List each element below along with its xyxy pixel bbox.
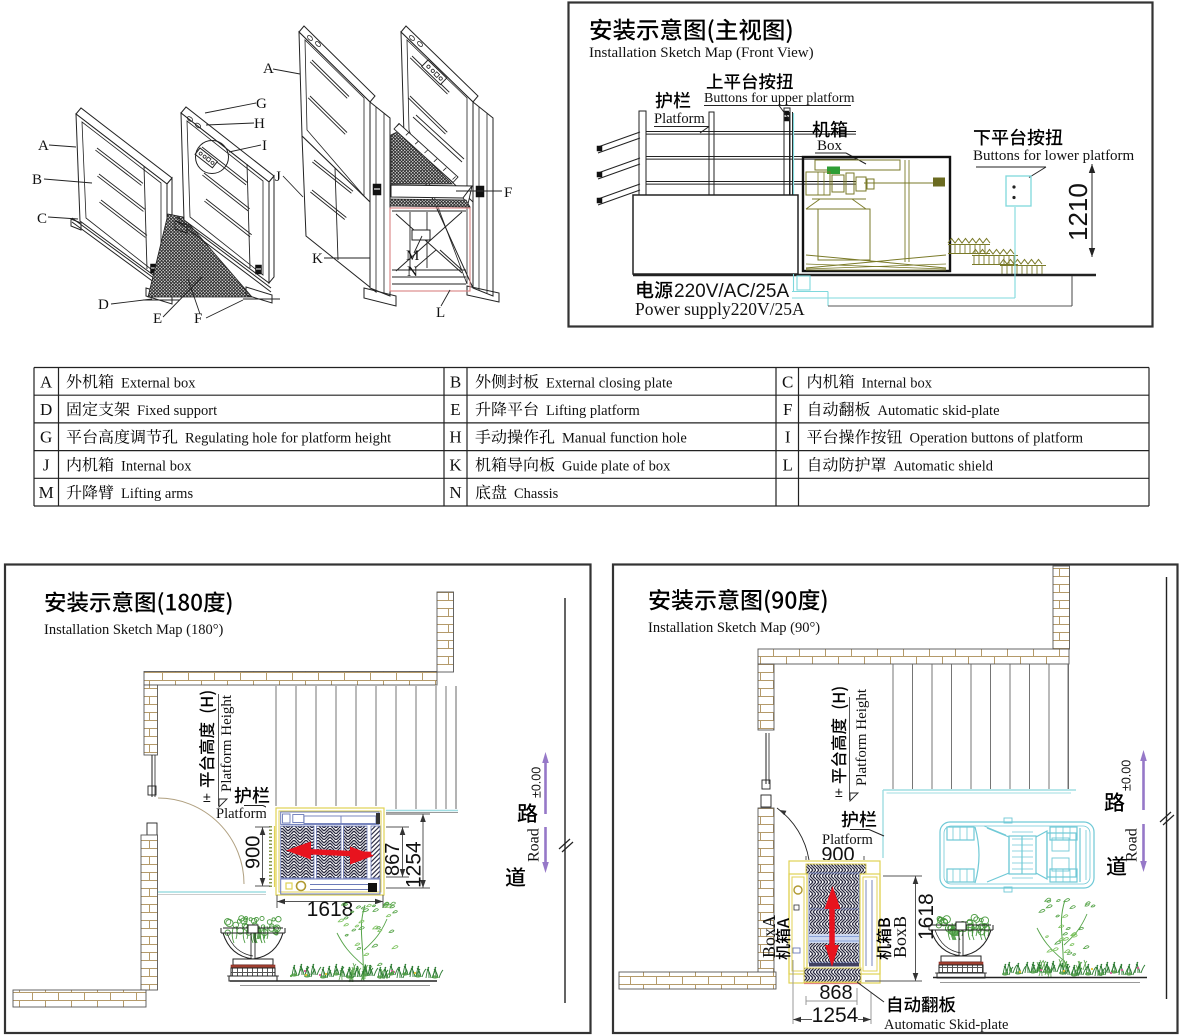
svg-text:K: K (312, 251, 323, 267)
svg-text:C: C (782, 372, 793, 391)
svg-text:M: M (39, 483, 54, 502)
svg-text:Platform: Platform (654, 111, 705, 127)
svg-text:F: F (783, 400, 792, 419)
svg-text:867: 867 (382, 843, 404, 876)
svg-text:Lifting arms: Lifting arms (121, 486, 193, 502)
svg-text:±0.00: ±0.00 (1120, 760, 1134, 791)
svg-text:B: B (450, 372, 461, 391)
svg-text:Regulating hole for platform h: Regulating hole for platform height (185, 431, 391, 447)
svg-text:J: J (275, 169, 281, 185)
svg-text:Lifting platform: Lifting platform (546, 403, 641, 419)
svg-text:Operation buttons of platform: Operation buttons of platform (910, 431, 1084, 447)
svg-text:BoxA: BoxA (759, 915, 779, 958)
svg-text:±: ± (835, 784, 843, 800)
svg-text:F: F (194, 311, 202, 327)
svg-text:I: I (262, 138, 267, 154)
svg-text:J: J (43, 455, 50, 474)
svg-text:G: G (256, 96, 267, 112)
svg-text:N: N (449, 483, 461, 502)
svg-text:1254: 1254 (812, 1004, 859, 1027)
svg-text:Automatic skid-plate: Automatic skid-plate (878, 403, 1000, 419)
svg-text:D: D (40, 400, 52, 419)
svg-text:Buttons for upper platform: Buttons for upper platform (704, 91, 855, 106)
svg-text:1210: 1210 (1063, 183, 1093, 241)
svg-text:H: H (254, 116, 265, 132)
svg-text:1618: 1618 (915, 893, 938, 940)
svg-text:±: ± (203, 789, 211, 805)
svg-text:External closing plate: External closing plate (546, 375, 672, 391)
svg-text:1618: 1618 (307, 898, 354, 921)
svg-text:Road: Road (526, 828, 543, 862)
svg-text:Platform Height: Platform Height (219, 694, 235, 792)
svg-text:900: 900 (243, 836, 265, 869)
svg-text:Platform Height: Platform Height (854, 688, 870, 786)
svg-text:Manual function hole: Manual function hole (562, 431, 687, 447)
svg-text:E: E (153, 311, 162, 327)
svg-text:1254: 1254 (403, 841, 426, 888)
svg-text:D: D (98, 297, 109, 313)
svg-text:B: B (32, 172, 42, 188)
svg-text:Chassis: Chassis (514, 486, 559, 502)
svg-text:External box: External box (121, 375, 196, 391)
svg-text:L: L (436, 305, 445, 321)
svg-text:K: K (449, 455, 462, 474)
svg-text:F: F (504, 185, 512, 201)
svg-text:BoxB: BoxB (890, 916, 910, 958)
svg-text:Box: Box (817, 138, 843, 154)
svg-text:Buttons for lower platform: Buttons for lower platform (973, 148, 1135, 164)
svg-text:Fixed support: Fixed support (137, 403, 217, 419)
svg-text:E: E (450, 400, 460, 419)
svg-text:G: G (40, 428, 52, 447)
svg-text:L: L (783, 455, 793, 474)
svg-text:Road: Road (1124, 828, 1141, 862)
svg-text:Internal box: Internal box (862, 375, 933, 391)
svg-text:Automatic shield: Automatic shield (894, 458, 994, 474)
svg-text:Installation Sketch Map (90°): Installation Sketch Map (90°) (648, 620, 820, 636)
svg-text:M: M (406, 248, 419, 264)
svg-text:H: H (449, 428, 461, 447)
svg-text:Guide plate of box: Guide plate of box (562, 458, 671, 474)
svg-text:Platform: Platform (216, 806, 267, 822)
svg-text:A: A (40, 372, 53, 391)
svg-text:A: A (263, 61, 274, 77)
svg-text:Power supply220V/25A: Power supply220V/25A (635, 299, 805, 319)
svg-text:Installation Sketch Map (Front: Installation Sketch Map (Front View) (589, 45, 814, 61)
svg-text:Installation Sketch Map (180°): Installation Sketch Map (180°) (44, 622, 224, 638)
svg-text:A: A (38, 138, 49, 154)
svg-text:C: C (37, 211, 47, 227)
svg-text:I: I (785, 428, 791, 447)
svg-text:±0.00: ±0.00 (530, 767, 544, 798)
svg-text:Automatic Skid-plate: Automatic Skid-plate (884, 1017, 1008, 1033)
svg-text:Internal box: Internal box (121, 458, 192, 474)
